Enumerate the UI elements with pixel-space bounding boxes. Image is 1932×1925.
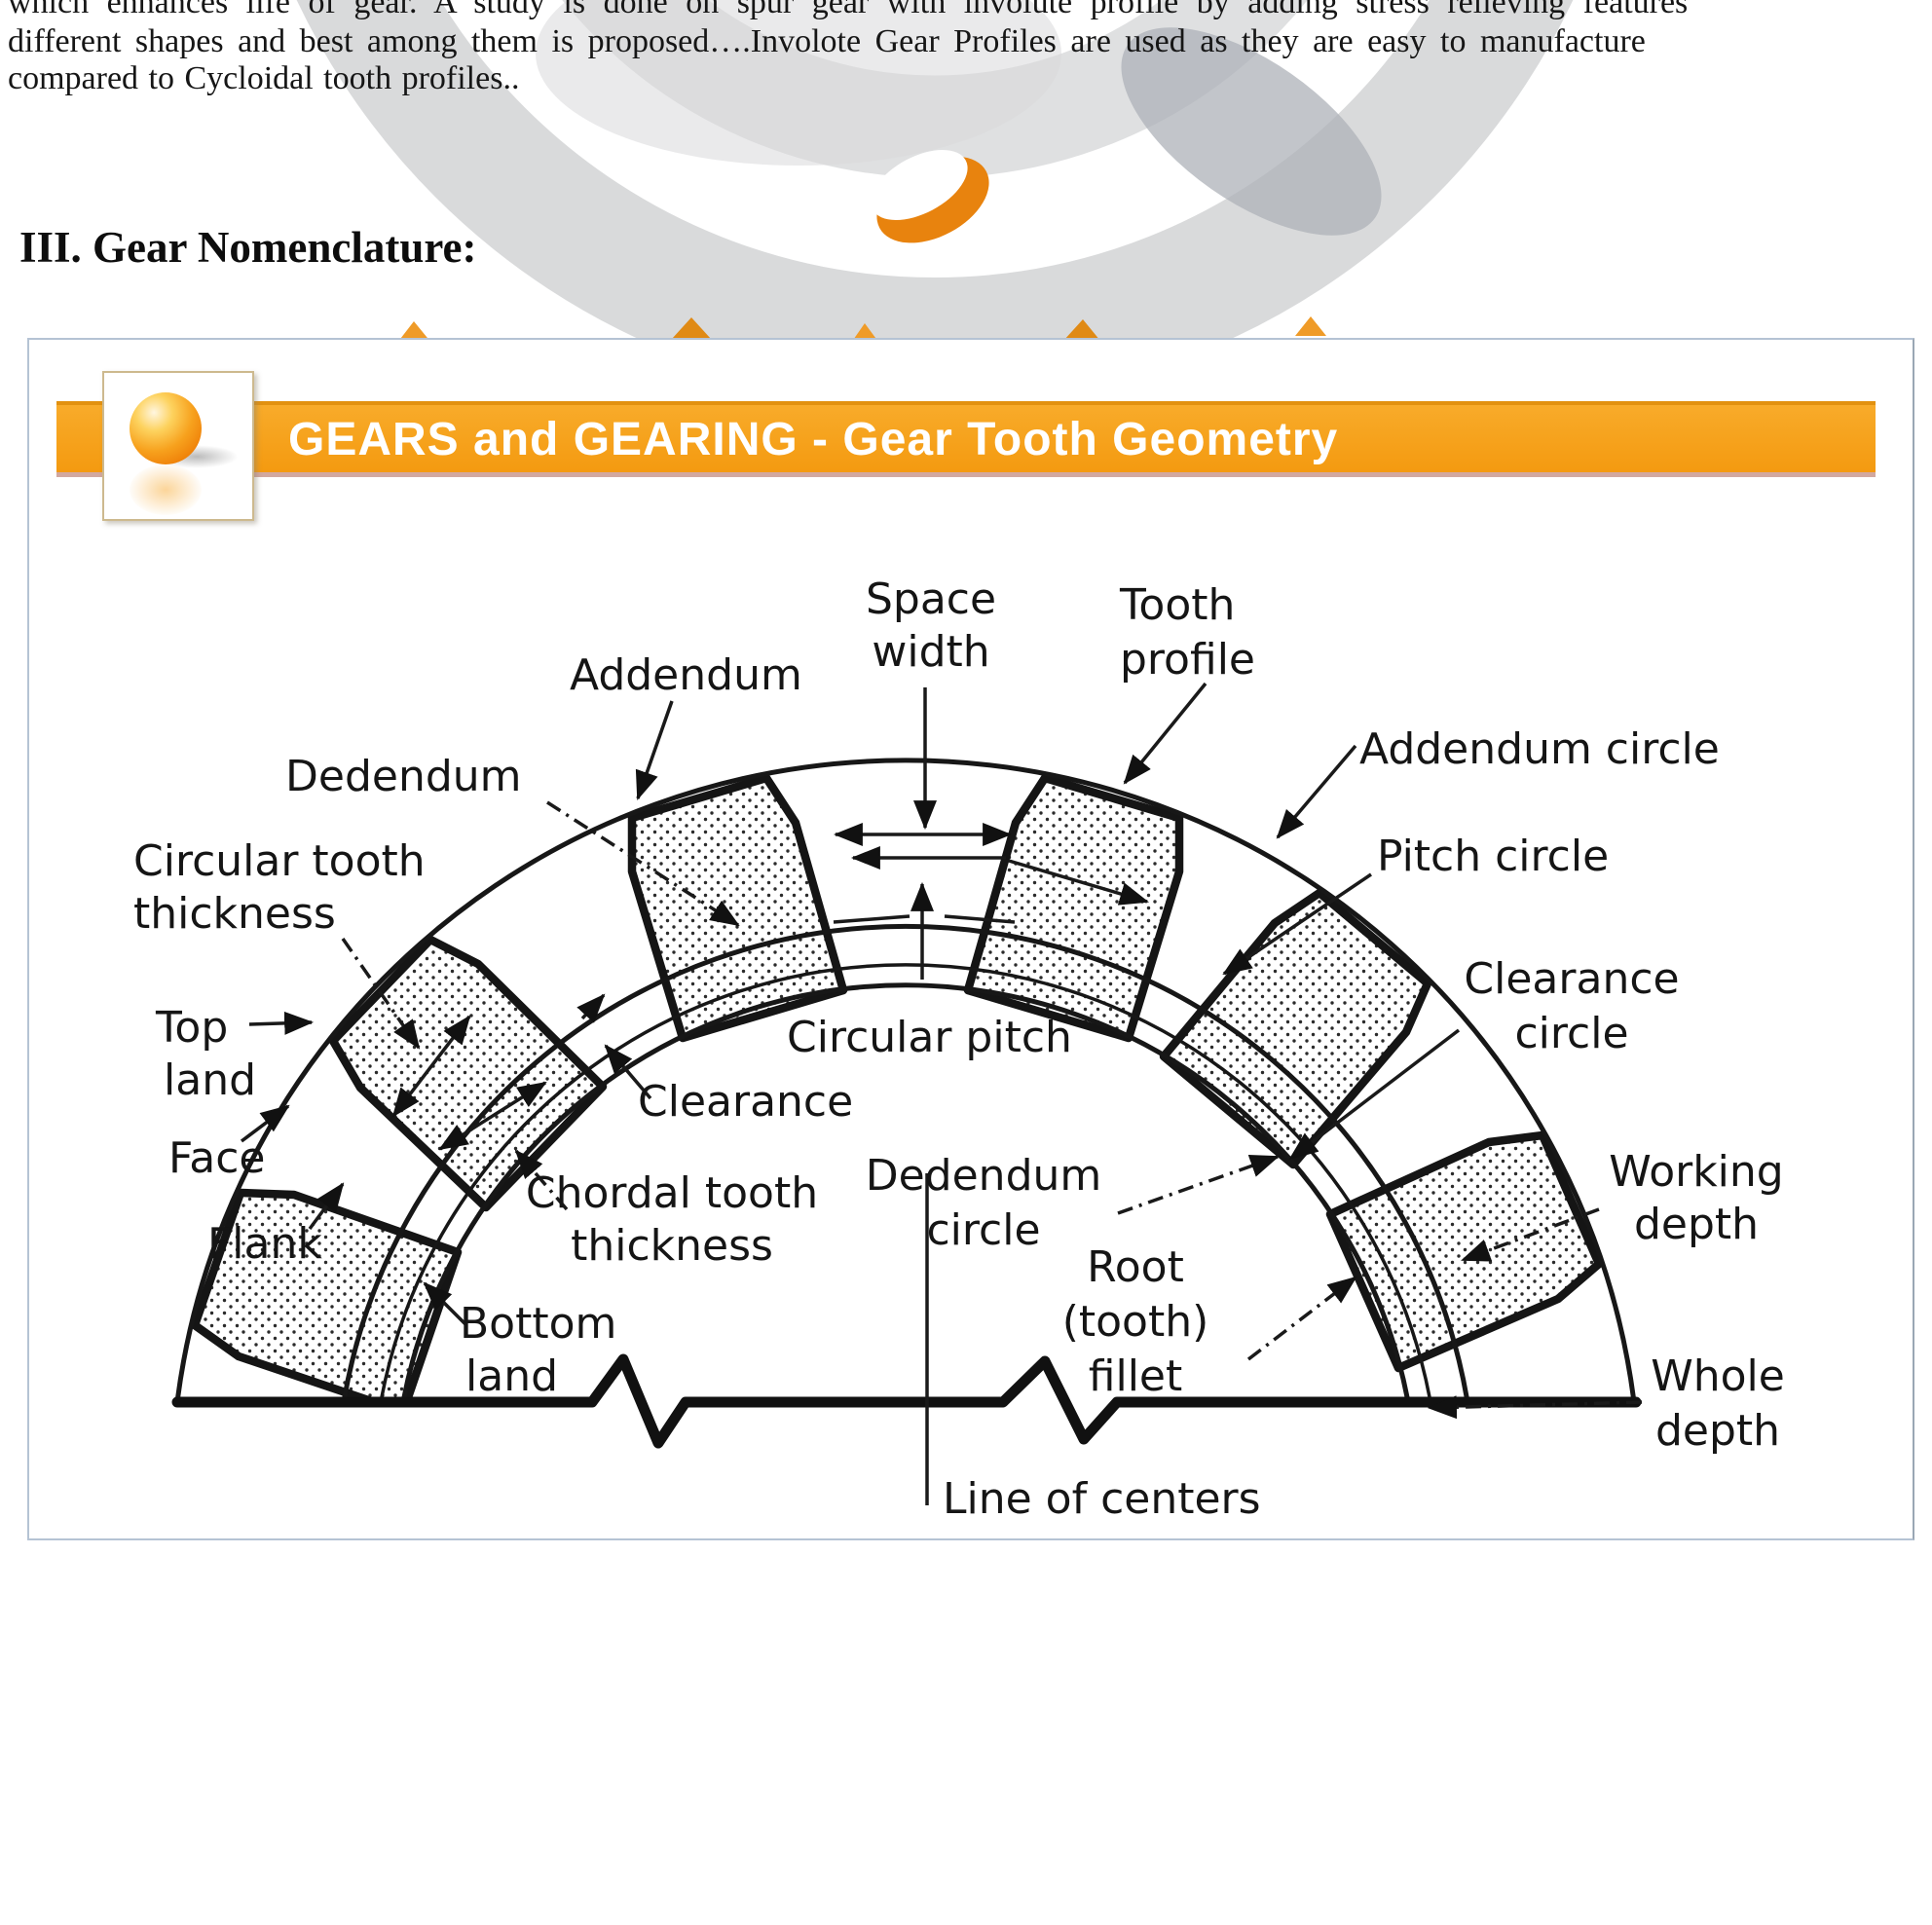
figure-frame <box>27 338 1914 1540</box>
sphere-reflection <box>130 464 202 515</box>
body-paragraph: which enhances life of gear. A study is … <box>0 0 1932 117</box>
body-text-line: which enhances life of gear. A study is … <box>8 0 1932 21</box>
body-text-line: compared to Cycloidal tooth profiles.. <box>8 60 1932 97</box>
body-text-line: different shapes and best among them is … <box>8 23 1932 60</box>
orange-sphere-icon <box>130 392 202 464</box>
figure-banner-title: GEARS and GEARING - Gear Tooth Geometry <box>288 413 1338 466</box>
figure-banner: GEARS and GEARING - Gear Tooth Geometry <box>56 401 1876 477</box>
section-heading: III. Gear Nomenclature: <box>19 222 477 273</box>
paper-page: which enhances life of gear. A study is … <box>0 0 1932 1925</box>
banner-icon-box <box>102 371 254 521</box>
